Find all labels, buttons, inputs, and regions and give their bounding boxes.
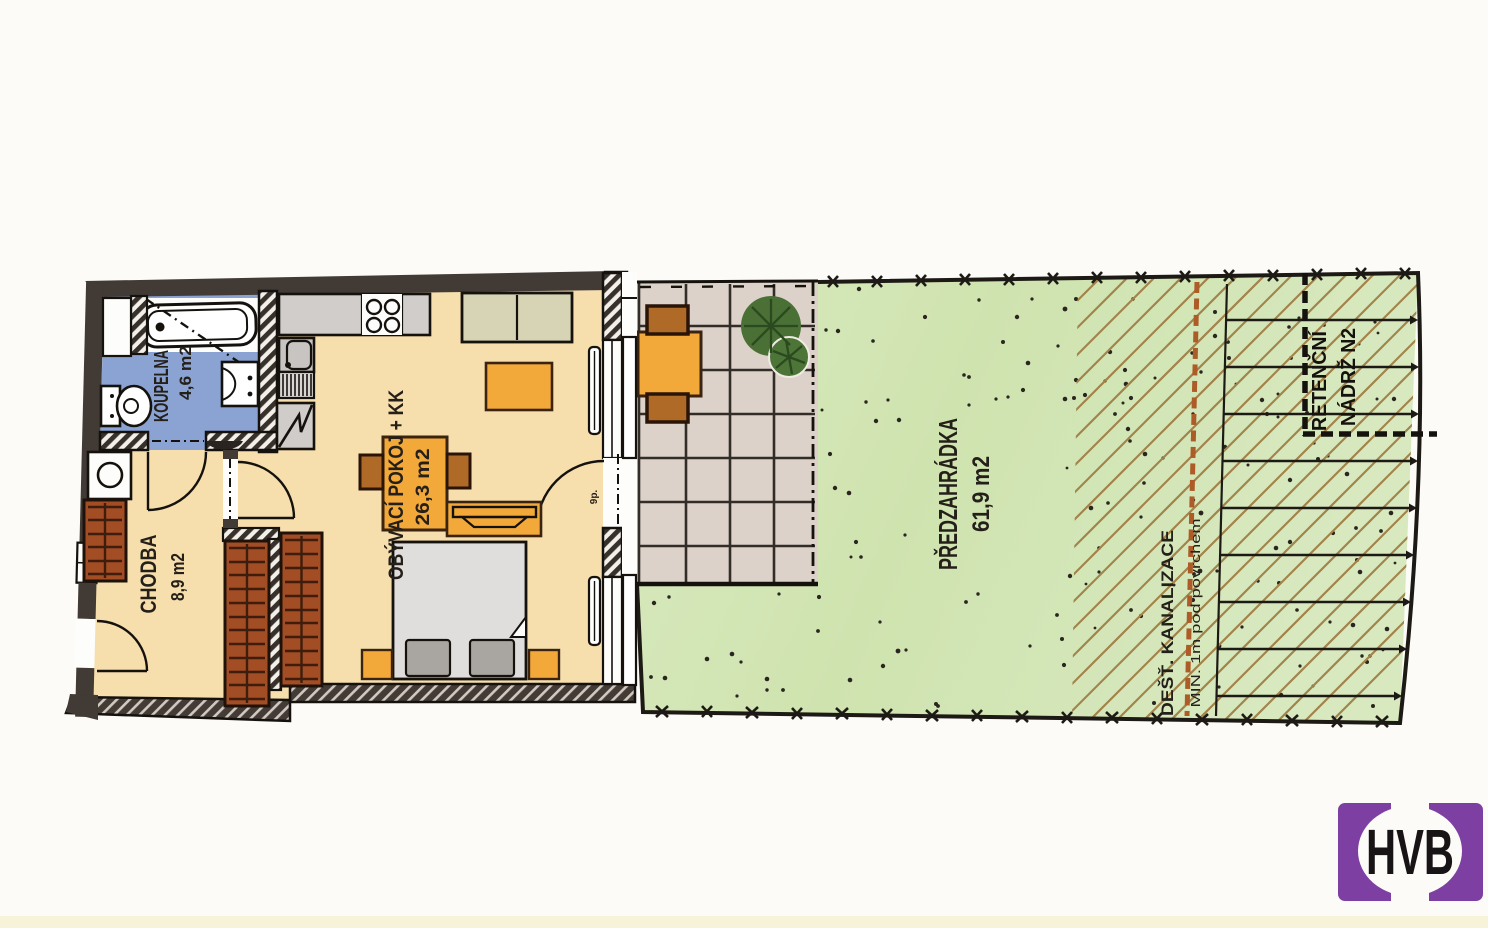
svg-text:OBÝVACÍ POKOJ + KK: OBÝVACÍ POKOJ + KK	[384, 390, 408, 580]
svg-text:NÁDRŽ N2: NÁDRŽ N2	[1336, 328, 1360, 426]
svg-text:8,9 m2: 8,9 m2	[168, 553, 188, 601]
svg-text:HVB: HVB	[1366, 816, 1454, 888]
svg-text:PŘEDZAHRÁDKA: PŘEDZAHRÁDKA	[933, 418, 963, 570]
svg-text:26,3 m2: 26,3 m2	[413, 449, 434, 526]
svg-text:CHODBA: CHODBA	[136, 534, 161, 613]
svg-text:DEŠŤ. KANALIZACE: DEŠŤ. KANALIZACE	[1158, 530, 1177, 716]
svg-text:9p.: 9p.	[589, 490, 600, 505]
svg-text:4,6 m2: 4,6 m2	[176, 346, 195, 400]
svg-text:RETENČNÍ: RETENČNÍ	[1307, 331, 1331, 431]
svg-text:MIN. 1m pod povrchem: MIN. 1m pod povrchem	[1188, 519, 1203, 708]
svg-text:61,9 m2: 61,9 m2	[968, 456, 995, 532]
svg-text:KOUPELNA: KOUPELNA	[151, 350, 173, 422]
